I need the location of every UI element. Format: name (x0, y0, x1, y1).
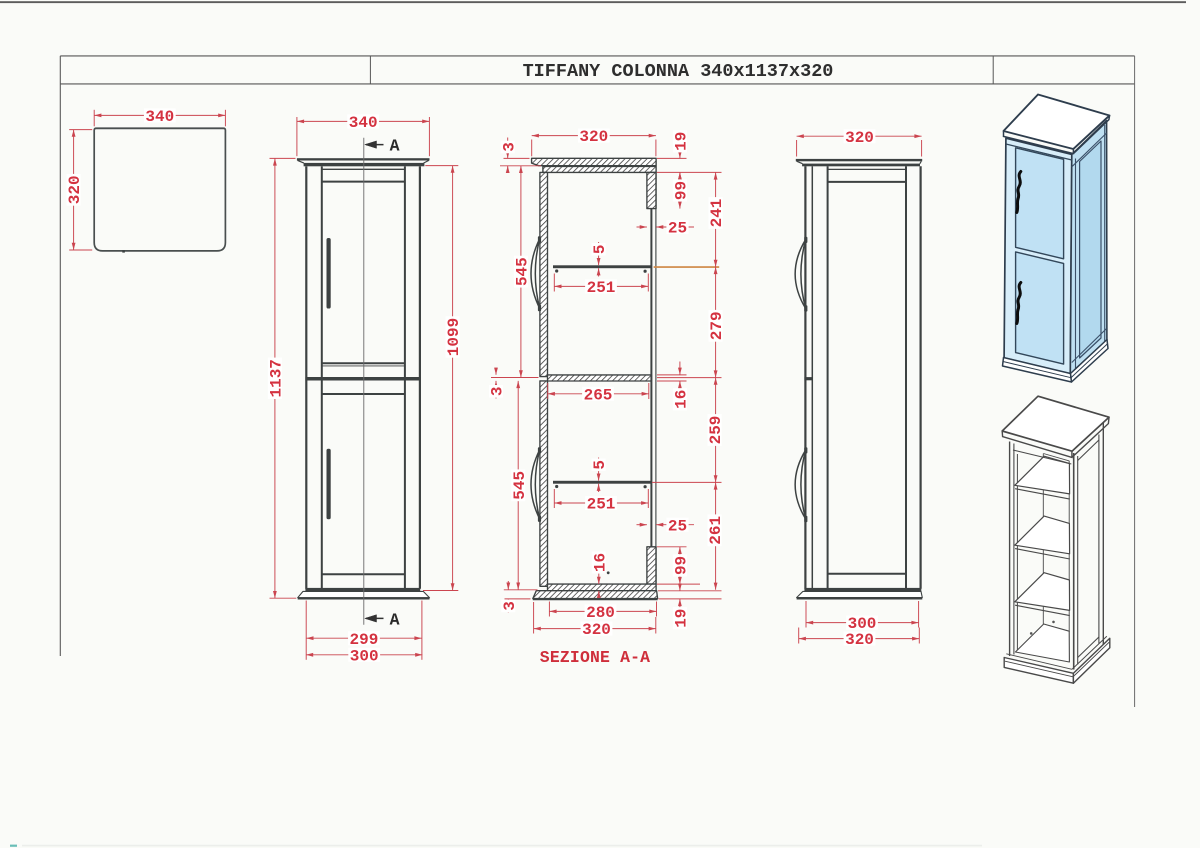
svg-text:5: 5 (591, 244, 609, 254)
svg-text:25: 25 (668, 517, 687, 535)
svg-text:A: A (390, 610, 400, 629)
svg-text:320: 320 (579, 128, 608, 146)
svg-text:5: 5 (591, 460, 609, 470)
svg-text:3: 3 (501, 601, 519, 611)
svg-text:3: 3 (500, 142, 518, 152)
svg-text:1137: 1137 (268, 359, 286, 397)
svg-text:265: 265 (584, 386, 613, 404)
svg-text:320: 320 (845, 631, 874, 649)
svg-text:340: 340 (349, 114, 378, 132)
svg-text:A: A (390, 137, 400, 156)
svg-text:300: 300 (350, 647, 379, 665)
svg-text:19: 19 (673, 609, 691, 628)
svg-text:259: 259 (707, 416, 725, 445)
svg-text:280: 280 (586, 604, 615, 622)
svg-text:545: 545 (511, 471, 529, 500)
svg-text:251: 251 (587, 496, 616, 514)
svg-text:TIFFANY COLONNA 340x1137x320: TIFFANY COLONNA 340x1137x320 (523, 61, 834, 82)
svg-text:261: 261 (707, 516, 725, 545)
svg-text:99: 99 (673, 181, 691, 200)
svg-text:16: 16 (673, 390, 691, 409)
svg-text:320: 320 (845, 129, 874, 147)
svg-text:320: 320 (582, 621, 611, 639)
svg-text:19: 19 (673, 132, 691, 151)
svg-text:3: 3 (489, 386, 507, 396)
svg-text:16: 16 (591, 553, 609, 572)
svg-text:SEZIONE A-A: SEZIONE A-A (540, 648, 650, 667)
svg-text:99: 99 (673, 556, 691, 575)
svg-text:241: 241 (708, 199, 726, 228)
svg-text:251: 251 (587, 279, 616, 297)
svg-text:320: 320 (66, 175, 84, 204)
svg-text:1099: 1099 (445, 318, 463, 356)
svg-text:340: 340 (145, 108, 174, 126)
svg-text:545: 545 (514, 257, 532, 286)
svg-text:299: 299 (350, 631, 379, 649)
svg-text:25: 25 (668, 220, 687, 238)
svg-text:279: 279 (708, 311, 726, 340)
